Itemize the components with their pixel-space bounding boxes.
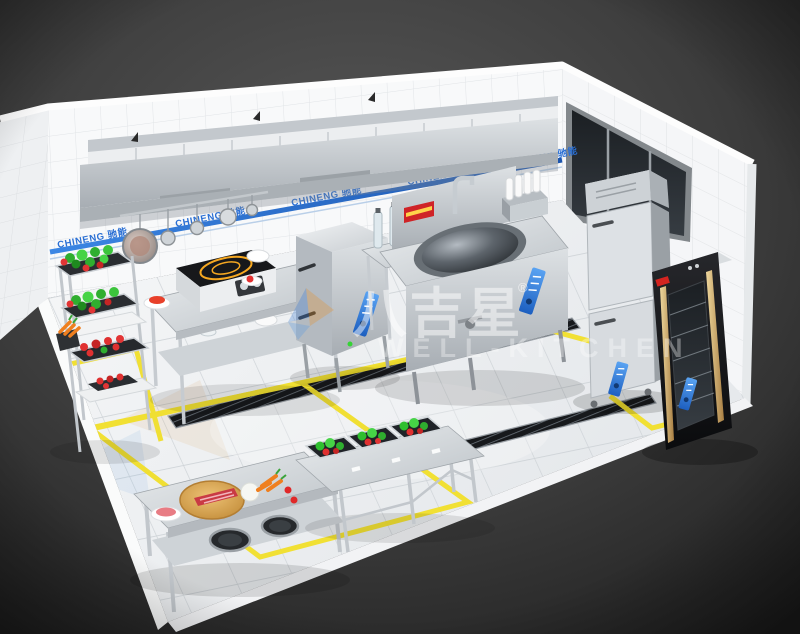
vignette-overlay — [0, 0, 800, 634]
kitchen-3d-render: CHINENG 驰能 CHINENG 驰能 CHINENG 驰能 CHINENG… — [0, 0, 800, 634]
kitchen-scene: CHINENG 驰能 CHINENG 驰能 CHINENG 驰能 CHINENG… — [0, 0, 800, 634]
